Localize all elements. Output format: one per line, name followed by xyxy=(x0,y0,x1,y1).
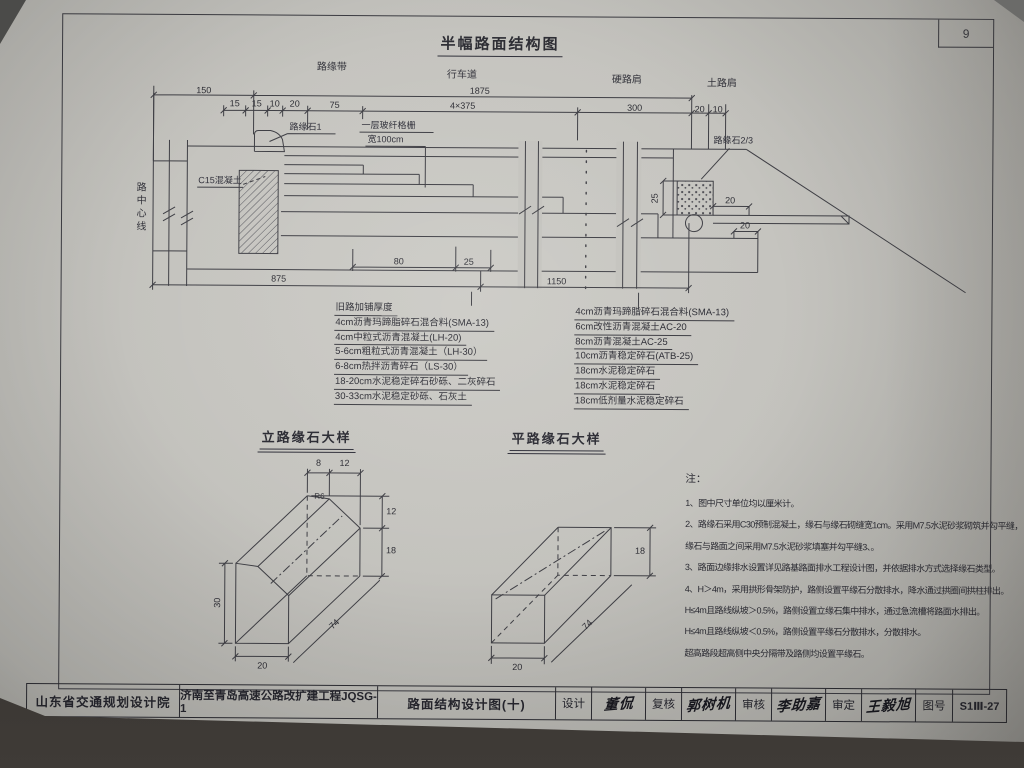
flat-curb-detail-lines xyxy=(488,524,656,665)
project-name: 济南至青岛高速公路改扩建工程JQSG-1 xyxy=(179,685,377,718)
vcurb-dim-18: 18 xyxy=(386,546,396,555)
curb23-label: 路缘石2/3 xyxy=(713,136,753,145)
signature-text: 李助嘉 xyxy=(776,693,822,717)
vertical-curb-detail-title: 立路缘石大样 xyxy=(260,426,354,450)
dim-1150: 1150 xyxy=(547,277,566,286)
cross-section-lines xyxy=(150,86,759,294)
signature-check: 郭树机 xyxy=(681,688,735,720)
dim-25: 25 xyxy=(464,258,474,267)
role-label-design: 设计 xyxy=(555,687,591,719)
note-line: 3、路面边缘排水设置详见路基路面排水工程设计图，并依据排水方式选择缘石类型。 xyxy=(685,557,1023,580)
layer-list-left-row: 30-33cm水泥稳定砂砾、石灰土 xyxy=(334,390,472,406)
vcurb-dim-8: 8 xyxy=(316,459,321,468)
zone-label-soil-shoulder: 土路肩 xyxy=(707,79,737,89)
lane-center-dotted-line xyxy=(586,150,587,290)
sheet-no: S1Ⅲ-27 xyxy=(952,690,1006,722)
layer-list-right-row: 6cm改性沥青混凝土AC-20 xyxy=(574,320,691,336)
layer-list-right-row: 10cm沥青稳定碎石(ATB-25) xyxy=(574,350,698,366)
dim-20-step: 20 xyxy=(740,221,750,230)
note-line: 超高路段超高侧中央分隔带及路侧均设置平缘石。 xyxy=(684,643,1022,666)
dim-15a: 15 xyxy=(230,99,240,108)
dim-10a: 10 xyxy=(270,100,280,109)
geogrid-label-line1: 一层玻纤格栅 xyxy=(362,121,416,130)
signature-design: 董侃 xyxy=(591,687,645,719)
layer-list-right-row: 18cm低剂量水泥稳定碎石 xyxy=(574,394,689,409)
layer-list-right: 4cm沥青玛蹄脂碎石混合料(SMA-13) 6cm改性沥青混凝土AC-20 8c… xyxy=(574,305,734,410)
layer-list-right-row: 18cm水泥稳定碎石 xyxy=(574,365,660,380)
vertical-curb-detail-lines xyxy=(218,468,389,663)
zone-label-curb-strip: 路缘带 xyxy=(317,63,347,73)
signature-text: 董侃 xyxy=(603,692,634,715)
flat-curb-detail-title: 平路缘石大样 xyxy=(510,428,604,452)
vcurb-dim-30: 30 xyxy=(213,598,222,608)
layer-list-left: 旧路加铺厚度 4cm沥青玛蹄脂碎石混合料(SMA-13) 4cm中粒式沥青混凝土… xyxy=(334,301,501,406)
curb1-label: 路缘石1 xyxy=(290,123,322,132)
drawing-title-cell: 路面结构设计图(十) xyxy=(377,686,555,719)
layer-list-left-row: 旧路加铺厚度 xyxy=(334,301,397,316)
dim-150: 150 xyxy=(196,86,211,95)
layer-list-right-row: 18cm水泥稳定碎石 xyxy=(574,379,660,394)
signature-review: 李助嘉 xyxy=(771,689,825,721)
note-line: 缘石与路面之间采用M7.5水泥砂浆填塞并勾平缝3、。 xyxy=(685,536,1023,559)
dim-20-shoulder: 20 xyxy=(725,196,735,205)
vcurb-dim-12-top: 12 xyxy=(339,459,349,468)
vcurb-fillet-r6: R6 xyxy=(314,493,324,501)
layer-list-left-row: 5-6cm粗粒式沥青混凝土（LH-30） xyxy=(334,345,487,361)
dim-20b: 20 xyxy=(695,105,705,114)
dim-875: 875 xyxy=(271,275,286,284)
note-line: H≤4m且路线纵坡＞0.5%，路侧设置立缘石集中排水，通过急流槽将路面水排出。 xyxy=(685,600,1023,623)
notes-heading: 注： xyxy=(685,471,1023,488)
photo-of-drawing-sheet: 9 xyxy=(0,0,1024,768)
c15-concrete-label: C15混凝土 xyxy=(198,176,242,185)
dim-80: 80 xyxy=(394,257,404,266)
signature-text: 王毅旭 xyxy=(866,693,912,717)
dim-10b: 10 xyxy=(713,105,723,114)
dim-300: 300 xyxy=(627,104,642,113)
layer-list-left-row: 4cm沥青玛蹄脂碎石混合料(SMA-13) xyxy=(334,316,494,332)
dim-15b: 15 xyxy=(252,99,262,108)
vcurb-dim-12-right: 12 xyxy=(386,507,396,516)
layer-list-right-row: 8cm沥青混凝土AC-25 xyxy=(574,335,672,350)
role-label-check: 复核 xyxy=(645,688,681,720)
role-label-approve: 审定 xyxy=(825,689,861,721)
title-block: 山东省交通规划设计院 济南至青岛高速公路改扩建工程JQSG-1 路面结构设计图(… xyxy=(26,683,1007,723)
dim-75: 75 xyxy=(330,101,340,110)
layer-list-right-row: 4cm沥青玛蹄脂碎石混合料(SMA-13) xyxy=(574,305,734,321)
note-line: H≤4m且路线纵坡＜0.5%，路侧设置平缘石分散排水，分散排水。 xyxy=(684,621,1022,644)
road-centerline-label: 路中心线 xyxy=(134,182,144,234)
dim-4x375: 4×375 xyxy=(450,102,475,111)
sheet-title: 半幅路面结构图 xyxy=(437,37,562,58)
geogrid-label-line2: 宽100cm xyxy=(367,135,403,144)
note-line: 2、路缘石采用C30预制混凝土，缘石与缘石砌缝宽1cm。采用M7.5水泥砂浆砌筑… xyxy=(685,514,1023,537)
dim-25-vertical: 25 xyxy=(651,193,660,203)
role-label-review: 审核 xyxy=(735,688,771,720)
note-line: 1、图中尺寸单位均以厘米计。 xyxy=(685,493,1023,516)
drawing-sheet-content: 9 xyxy=(0,0,1024,768)
bottom-dimensions xyxy=(149,220,692,310)
dim-20a: 20 xyxy=(290,100,300,109)
org-name: 山东省交通规划设计院 xyxy=(27,684,179,717)
zone-label-carriageway: 行车道 xyxy=(447,71,477,81)
shoulder-curb-zone xyxy=(660,148,967,293)
sheet-no-label: 图号 xyxy=(915,689,952,721)
dim-1875: 1875 xyxy=(470,87,490,96)
break-lines xyxy=(518,141,644,290)
signature-text: 郭树机 xyxy=(686,692,732,716)
vcurb-dim-20: 20 xyxy=(257,661,267,670)
note-line: 4、H＞4m，采用拱形骨架防护，路侧设置平缘石分散排水，降水通过拱圈间拱柱排出。 xyxy=(685,579,1023,602)
notes-section: 注： 1、图中尺寸单位均以厘米计。 2、路缘石采用C30预制混凝土，缘石与缘石砌… xyxy=(684,471,1023,666)
zone-label-hard-shoulder: 硬路肩 xyxy=(612,76,642,86)
fcurb-dim-18: 18 xyxy=(635,547,645,556)
signature-approve: 王毅旭 xyxy=(861,689,915,721)
fcurb-dim-20: 20 xyxy=(512,663,522,672)
layer-list-left-row: 6-8cm热拌沥青碎石（LS-30） xyxy=(334,360,468,376)
layer-list-left-row: 4cm中粒式沥青混凝土(LH-20) xyxy=(334,331,466,347)
layer-list-left-row: 18-20cm水泥稳定碎石砂砾、二灰碎石 xyxy=(334,375,501,391)
